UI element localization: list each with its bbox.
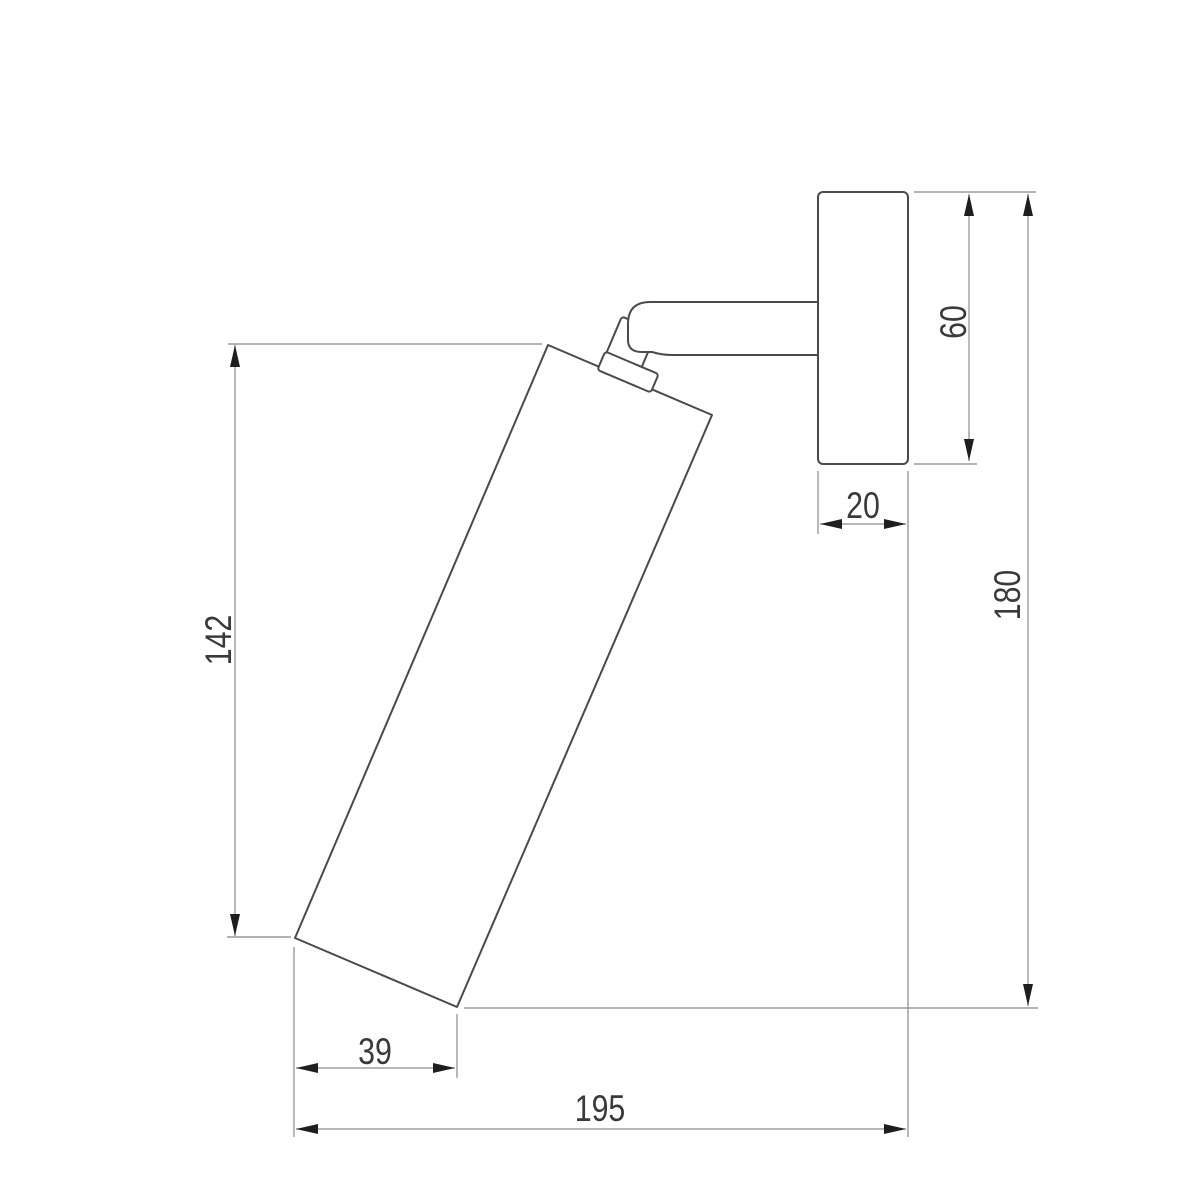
technical-drawing-wall-spotlight: 142 39 195 20 60 180 [0,0,1200,1200]
arrow-39-right [433,1063,455,1073]
arrow-195-right [884,1124,906,1134]
dim-label-20: 20 [846,485,880,527]
arrow-142-top [230,345,240,367]
arrow-142-bottom [230,914,240,936]
wall-plate [818,192,908,464]
dim-label-142: 142 [198,615,240,666]
lamp-body [295,345,712,1007]
dim-label-60: 60 [933,305,975,339]
dim-label-39: 39 [358,1031,392,1073]
arrow-20-right [884,519,906,529]
arrow-180-bottom [1023,984,1033,1006]
dim-label-180: 180 [987,570,1029,621]
arrow-195-left [296,1124,318,1134]
lamp-outline [295,192,908,1007]
arrow-60-bottom [964,439,974,461]
mounting-arm [628,302,818,355]
arrow-39-left [296,1063,318,1073]
arrow-180-top [1023,194,1033,216]
arrow-60-top [964,194,974,216]
drawing-canvas: 142 39 195 20 60 180 [0,0,1200,1200]
dim-label-195: 195 [575,1088,626,1130]
arrow-20-left [820,519,842,529]
